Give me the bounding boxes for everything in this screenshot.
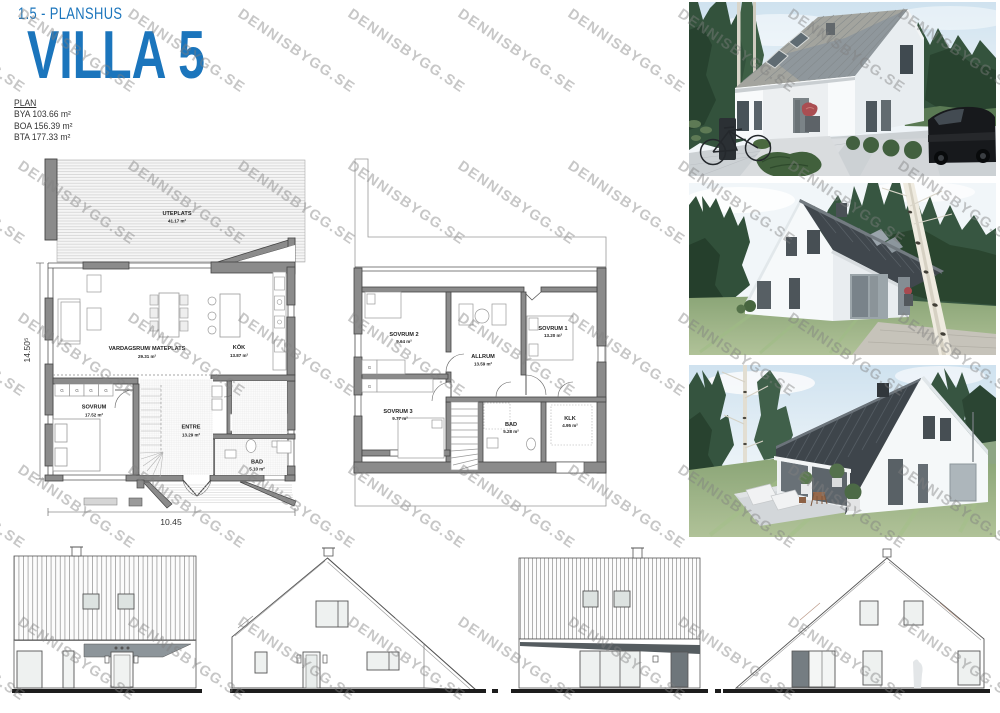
- svg-text:DENNISBYGG.SE: DENNISBYGG.SE: [15, 6, 138, 96]
- svg-text:29.31 m²: 29.31 m²: [138, 354, 157, 359]
- svg-text:DENNISBYGG.SE: DENNISBYGG.SE: [565, 462, 688, 552]
- svg-text:4.95 m²: 4.95 m²: [562, 423, 578, 428]
- svg-text:DENNISBYGG.SE: DENNISBYGG.SE: [565, 310, 688, 400]
- svg-text:DENNISBYGG.SE: DENNISBYGG.SE: [455, 158, 578, 248]
- svg-text:KLK: KLK: [564, 416, 576, 422]
- svg-text:DENNISBYGG.SE: DENNISBYGG.SE: [235, 462, 358, 552]
- svg-text:5.28 m²: 5.28 m²: [503, 429, 519, 434]
- svg-text:G: G: [368, 365, 371, 370]
- svg-text:13.87 m²: 13.87 m²: [230, 353, 249, 358]
- svg-text:17.52 m²: 17.52 m²: [85, 413, 104, 418]
- svg-text:DENNISBYGG.SE: DENNISBYGG.SE: [15, 462, 138, 552]
- svg-text:9.77 m²: 9.77 m²: [392, 416, 408, 421]
- svg-text:13.59 m²: 13.59 m²: [474, 362, 493, 367]
- svg-text:14.50⁵: 14.50⁵: [22, 337, 32, 363]
- svg-text:G: G: [75, 388, 79, 393]
- svg-text:BAD: BAD: [505, 422, 517, 428]
- svg-text:DENNISBYGG.SE: DENNISBYGG.SE: [345, 158, 468, 248]
- svg-text:BAD: BAD: [251, 460, 263, 466]
- svg-text:SOVRUM 3: SOVRUM 3: [383, 409, 412, 415]
- svg-text:ALLRUM: ALLRUM: [471, 354, 495, 360]
- svg-text:G: G: [89, 388, 93, 393]
- svg-text:DENNISBYGG.SE: DENNISBYGG.SE: [235, 6, 358, 96]
- svg-text:DENNISBYGG.SE: DENNISBYGG.SE: [125, 6, 248, 96]
- svg-text:13.29 m²: 13.29 m²: [182, 433, 201, 438]
- svg-text:DENNISBYGG.SE: DENNISBYGG.SE: [455, 462, 578, 552]
- svg-text:G: G: [104, 388, 108, 393]
- svg-text:DENNISBYGG.SE: DENNISBYGG.SE: [345, 462, 468, 552]
- svg-text:G: G: [60, 388, 64, 393]
- svg-text:DENNISBYGG.SE: DENNISBYGG.SE: [565, 158, 688, 248]
- svg-text:DENNISBYGG.SE: DENNISBYGG.SE: [565, 6, 688, 96]
- svg-text:10.45: 10.45: [160, 517, 182, 527]
- svg-text:13.20 m²: 13.20 m²: [544, 333, 563, 338]
- svg-text:G: G: [368, 384, 371, 389]
- svg-text:SOVRUM: SOVRUM: [82, 405, 107, 411]
- svg-text:DENNISBYGG.SE: DENNISBYGG.SE: [345, 6, 468, 96]
- svg-text:DENNISBYGG.SE: DENNISBYGG.SE: [455, 6, 578, 96]
- svg-text:KÖK: KÖK: [233, 344, 245, 351]
- svg-text:41.17 m²: 41.17 m²: [168, 219, 187, 224]
- svg-text:ENTRE: ENTRE: [182, 425, 201, 431]
- svg-text:SOVRUM 1: SOVRUM 1: [538, 326, 567, 332]
